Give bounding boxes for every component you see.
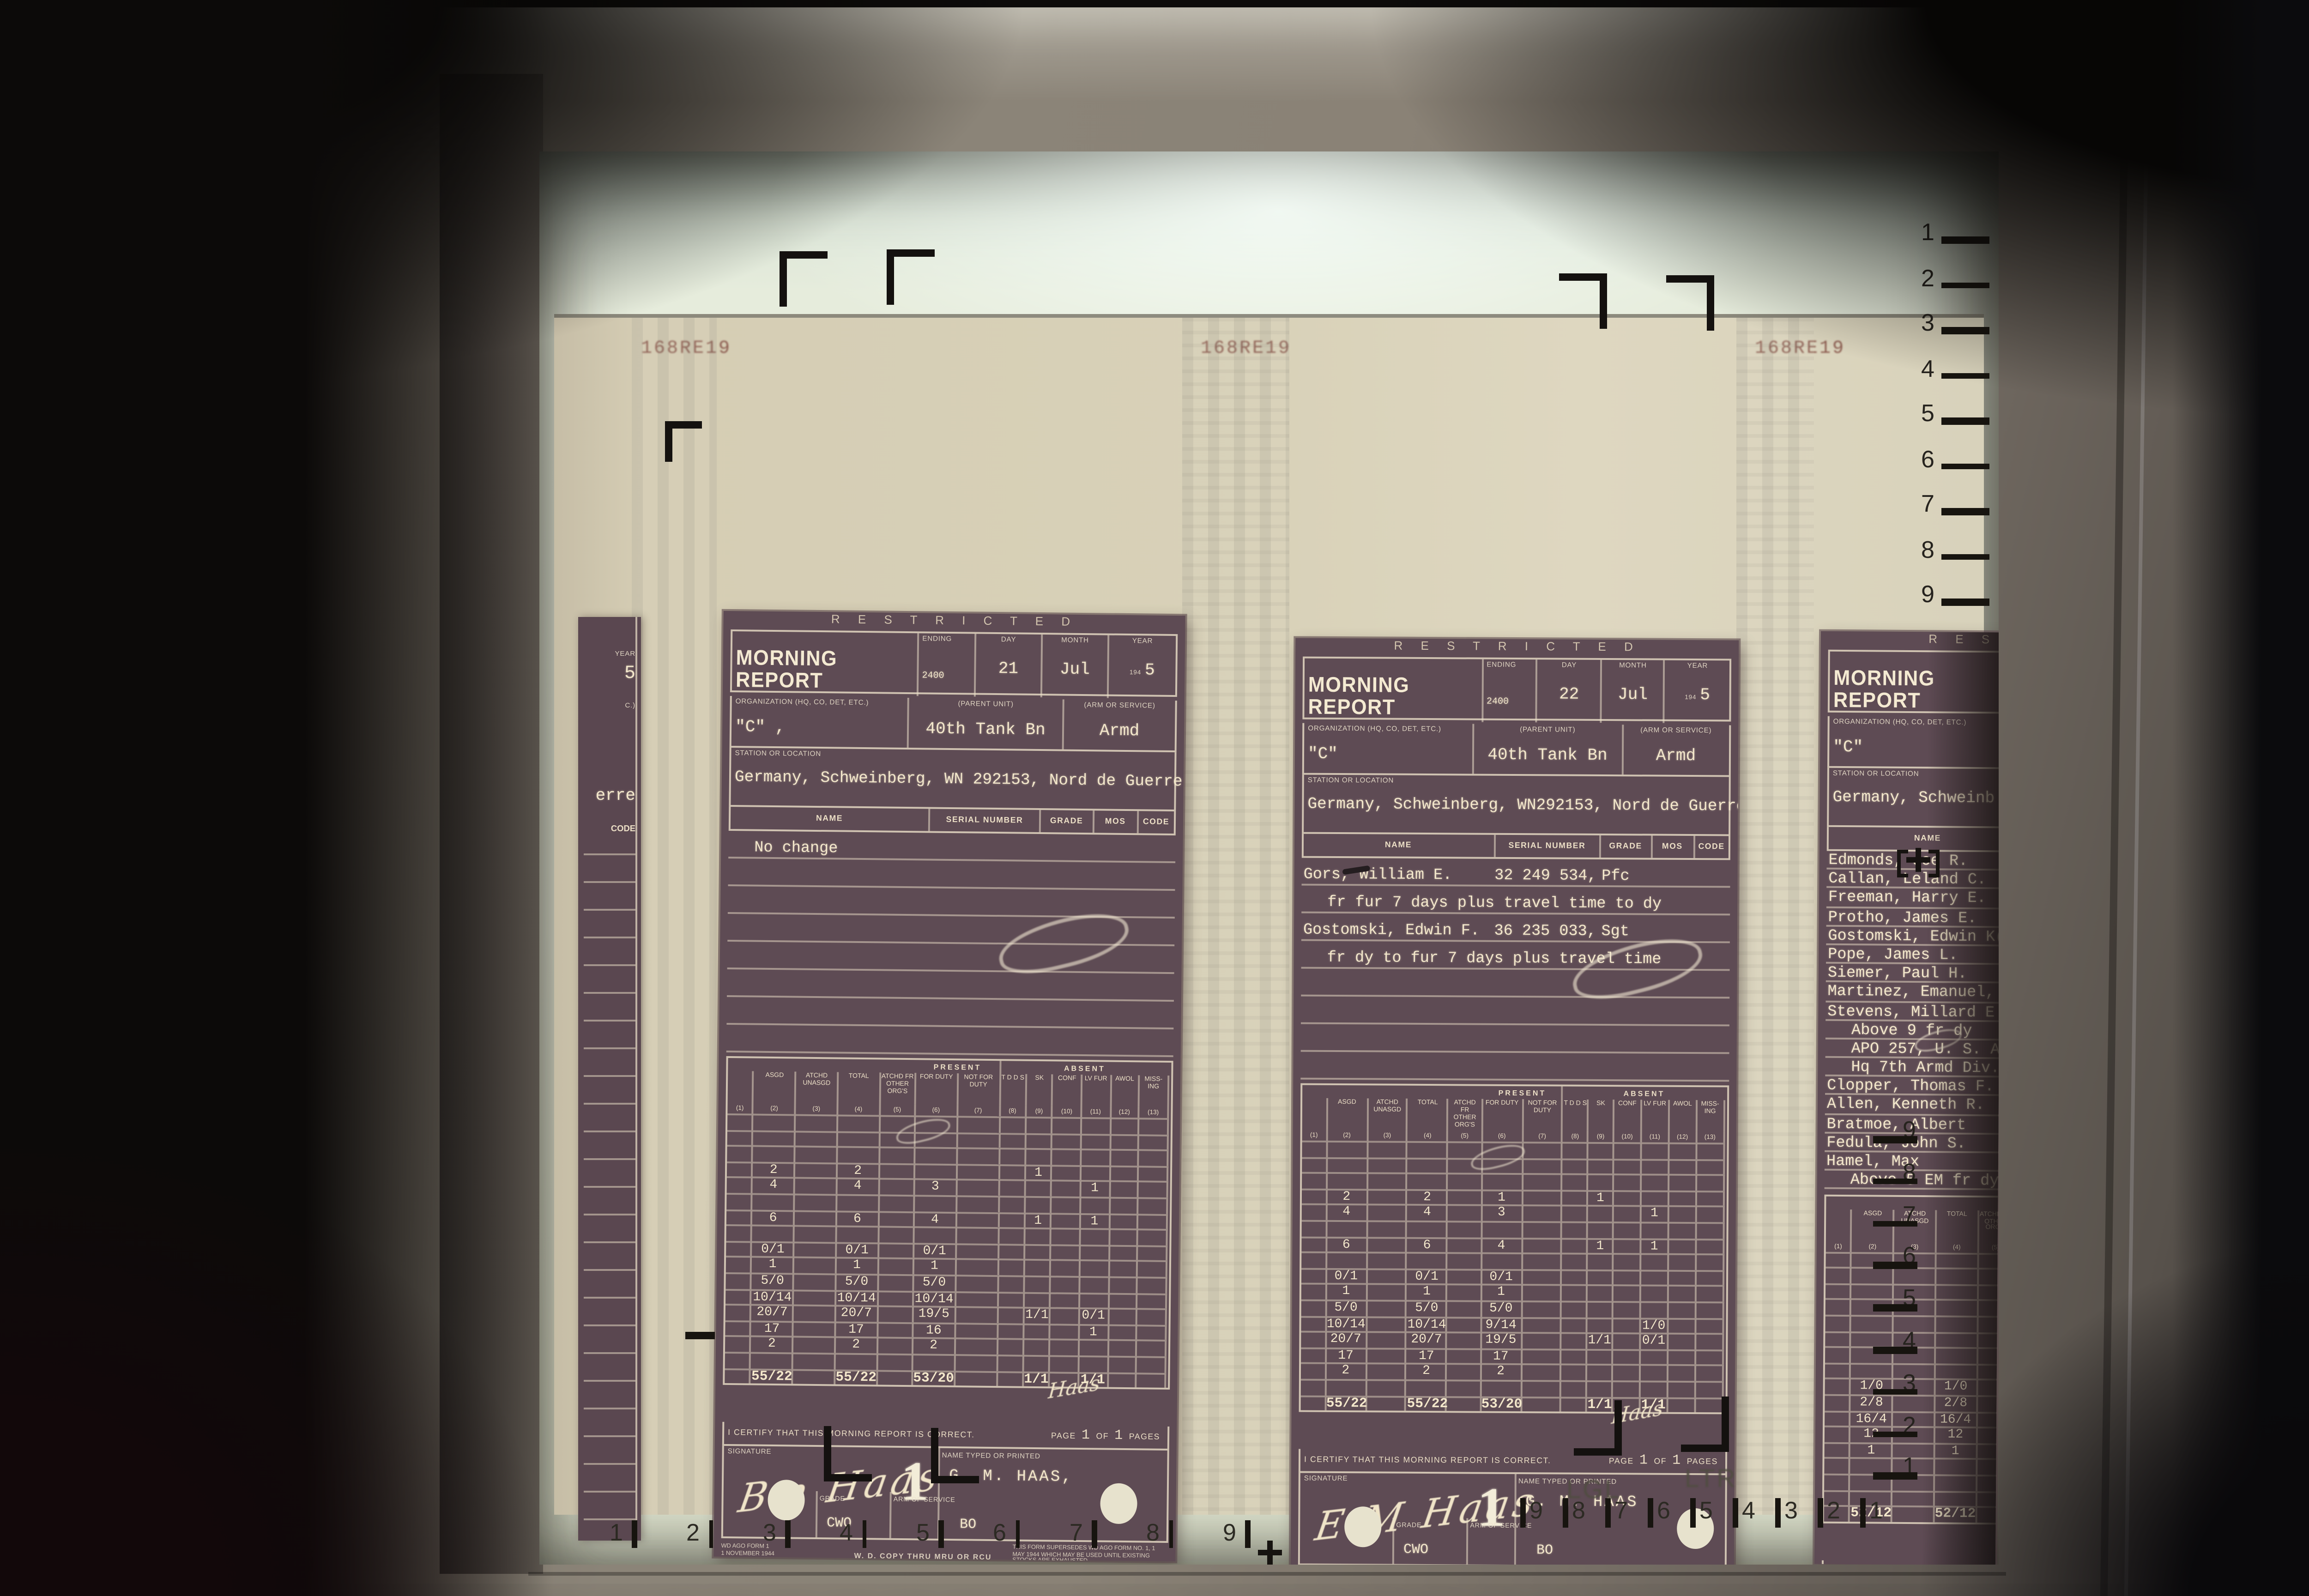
strength-cell [1447,1363,1481,1379]
strength-cell [1366,1395,1407,1411]
strength-cell [1137,1372,1166,1388]
strength-col-label: TOTAL [1408,1099,1449,1130]
strength-cell [1825,1299,1852,1315]
strength-cell [1447,1379,1481,1396]
strength-cell: 1 [1080,1324,1109,1340]
entry-name: Gors, William E. [1302,865,1495,885]
strength-cell [997,1354,1024,1371]
day-cell: DAY22 [1538,659,1602,723]
strength-col-number: (2) [1852,1240,1894,1252]
ruler-tick [862,1520,866,1548]
strength-cell [1588,1348,1613,1365]
ruler-tick [1941,463,1989,469]
strength-cell [956,1259,999,1275]
strength-cell: 0/1 [1080,1307,1109,1324]
ruler-tick [1733,1498,1737,1528]
strength-cell [1825,1251,1852,1267]
strength-cell [838,1114,881,1130]
strength-cell [1563,1158,1589,1174]
film-sheet: 168RE19 168RE19 168RE19 YEAR 5 C.) erre … [554,318,1984,1515]
strength-cell [1302,1220,1327,1236]
day-label: DAY [1542,661,1596,670]
strength-col-label: SK [1589,1100,1615,1131]
strength-cell [1110,1228,1139,1245]
station-cell: STATION OR LOCATIONGermany, Schweinberg,… [1304,775,1729,834]
strength-cell [1408,1157,1449,1173]
strength-cell [1825,1283,1852,1299]
strength-cell [1301,1283,1327,1300]
strength-col-number: (13) [1140,1106,1169,1118]
strength-cell [1138,1276,1167,1293]
entry-name [726,1051,928,1053]
strength-cell: 2 [913,1337,956,1354]
arm-of-service-value: BO [960,1518,976,1533]
certify-text: I CERTIFY THAT THIS MORNING REPORT IS CO… [1300,1455,1551,1466]
strength-cell [1082,1165,1111,1181]
strength-cell [727,1145,754,1161]
strength-cell [997,1370,1024,1386]
column-header: CODE [1138,811,1174,834]
strength-cell [1327,1220,1368,1236]
strength-cell [1588,1380,1613,1396]
strength-col-label: T D D S [1563,1100,1589,1131]
entry-grade: Pfc [1602,867,1653,886]
strength-cell [1562,1285,1588,1301]
entry-serial [1494,1023,1601,1024]
strength-cell [1448,1236,1482,1252]
strength-cell [1669,1158,1697,1174]
day-value: 22 [1542,684,1596,703]
parent-cell: (PARENT UNIT)40th Tank Bn [1474,724,1623,775]
strength-cell [1825,1426,1851,1442]
strength-cell [878,1353,913,1369]
ruler-tick [1860,1498,1865,1528]
strength-cell [1851,1362,1893,1378]
grade-label: GRADE [820,1495,845,1504]
pages-number: 1 [1114,1429,1124,1444]
strength-cell [1563,1253,1588,1269]
ruler-digit: 1 [1921,218,1934,246]
strength-cell: 2/8 [1851,1394,1893,1410]
ruler-tick [1941,508,1989,514]
entry-row: Gors, William E.32 249 534,Pfc [1302,858,1730,888]
strength-cell [1851,1457,1893,1474]
strength-cell [1448,1205,1482,1221]
org-cell: ORGANIZATION (HQ, CO, DET, ETC.)"C" [1304,723,1475,774]
strength-col-label [728,1071,755,1103]
strength-cell [838,1146,880,1162]
strength-cell: 17 [1481,1348,1522,1364]
strength-cell [1052,1180,1082,1197]
strength-cell [1562,1300,1588,1317]
strength-cell: 6 [1408,1236,1448,1252]
strength-cell [1109,1276,1138,1292]
strength-cell [725,1320,752,1336]
strength-cell [1327,1173,1368,1189]
entry-remark-row: fr fur 7 days plus travel time to dy [1301,886,1730,916]
strength-cell [956,1306,998,1323]
strength-cell: 6 [1327,1236,1368,1252]
ending-label: ENDING [922,635,971,644]
arm-value: Armd [1626,746,1725,765]
strength-cell [726,1209,753,1225]
entry-grade [1601,1052,1652,1052]
strength-cell [1642,1158,1669,1174]
ruler-tick [1873,1473,1917,1480]
org-label: ORGANIZATION (HQ, CO, DET, ETC.) [736,698,904,708]
page-stamp-numeral: 1 [901,1451,929,1515]
strength-cell [999,1148,1026,1164]
strength-cell [1697,1190,1724,1206]
strength-cell [725,1352,752,1368]
strength-cell [1302,1188,1327,1204]
strength-cell [1082,1133,1111,1149]
strength-cell [727,1129,754,1145]
pages-label: PAGES [1129,1432,1160,1441]
strength-col-number: (7) [958,1105,1000,1116]
strength-cell: 1 [1408,1284,1448,1300]
ruler-tick [1775,1498,1780,1528]
column-header: GRADE [1601,835,1652,858]
strength-cell [1139,1165,1168,1181]
footer-form-line2: 1 NOVEMBER 1944 [721,1549,833,1558]
strength-cell [1523,1157,1564,1173]
strength-cell [726,1225,753,1241]
strength-cell [956,1275,998,1291]
strength-cell [1523,1173,1563,1190]
strength-cell [1408,1173,1449,1189]
strength-row [1302,1220,1727,1238]
corner-mark-icon [665,421,702,462]
strength-cell [1448,1221,1482,1237]
doc-header-row1: MORNING REPORTENDING2400DAY21MONTHJulYEA… [730,629,1178,697]
ruler-digit: 4 [1742,1496,1755,1524]
corner-mark-icon [1559,273,1607,329]
strength-cell [1301,1378,1326,1395]
strength-cell [1301,1268,1327,1284]
entry-row [726,1025,1174,1057]
strength-cell [1053,1149,1082,1165]
strength-cell: 55/22 [835,1368,878,1384]
strength-cell [957,1195,999,1211]
strength-cell [1523,1142,1564,1158]
strength-cell: 4 [915,1210,957,1227]
station-value: Germany, Schweinberg, WN 292153, Nord de… [735,767,1171,790]
bezel-seam [528,1572,2006,1576]
strength-cell: 10/14 [752,1288,795,1305]
strength-cell: 2 [752,1336,794,1352]
strength-cell: 1 [837,1257,879,1274]
strength-cell [877,1369,913,1385]
entry-serial: 32 249 534, [1494,866,1602,885]
strength-cell [1641,1269,1669,1285]
crosshair-bracket-icon [1906,848,1930,872]
strength-cell [955,1338,998,1354]
year-value: 1945 [1669,685,1726,704]
year-label: YEAR [1669,662,1726,671]
strength-col-number: (13) [1697,1131,1725,1143]
strength-cell [1642,1174,1669,1190]
doc-header-row3: STATION OR LOCATIONGermany, Schweinberg,… [729,748,1176,811]
strength-cell [1588,1253,1614,1269]
column-header: NAME [731,807,930,831]
footer-form-number: WD AGO FORM 11 NOVEMBER 1944 [721,1542,834,1561]
strength-cell [1482,1173,1523,1189]
column-header: CODE [1694,836,1729,858]
strength-cell [1137,1356,1166,1372]
strength-cell: 6 [837,1210,880,1226]
strength-cell [1137,1308,1167,1324]
strength-cell [1852,1315,1894,1331]
strength-cell: 5/0 [836,1273,879,1289]
strength-cell [726,1240,753,1257]
ending-cell: ENDING2400 [918,633,976,696]
strength-cell [1668,1380,1696,1396]
strength-cell [1111,1133,1140,1149]
strength-row: 0/10/10/1 [1301,1268,1726,1286]
strength-cell: 17 [752,1320,794,1336]
ruler-digit: 6 [1657,1496,1670,1524]
ruler-digit: 7 [1921,490,1934,517]
strength-cell [753,1225,795,1241]
strength-cell [725,1367,751,1384]
strength-cell: 4 [1408,1204,1449,1221]
film-striations [1736,318,1814,1515]
station-value: Germany, Schweinberg, WN292153, Nord de … [1307,794,1725,815]
ruler-tick [1520,1498,1525,1528]
strength-cell [794,1257,837,1273]
month-value: Jul [1046,659,1103,678]
strength-cell [1027,1117,1053,1133]
day-cell: DAY21 [976,634,1043,698]
strength-col-number: (8) [1563,1131,1589,1142]
strength-cell [1081,1228,1110,1245]
strength-cell [1051,1291,1080,1307]
strength-cell [957,1148,1000,1164]
strength-cell [1139,1149,1168,1166]
ending-value: 2400 [922,669,970,681]
strength-cell [1614,1301,1641,1317]
strength-cell [1696,1285,1724,1301]
strength-cell [1368,1157,1408,1173]
strength-cell [878,1321,913,1337]
strength-cell: 10/14 [914,1290,956,1306]
entry-code [1138,999,1173,1000]
ruler-tick [1941,372,1989,379]
strength-col-number: (1) [727,1102,754,1114]
strength-cell [1327,1156,1368,1173]
strength-cell [1024,1323,1051,1339]
strength-cell [1641,1301,1668,1317]
entry-code [1139,916,1174,917]
strength-cell [1522,1269,1563,1285]
column-header: MOS [1652,836,1694,858]
strength-cell [1138,1229,1167,1245]
strength-cell [1523,1189,1563,1205]
corner-mark-icon [1666,275,1714,331]
year-label: YEAR [1113,637,1172,646]
strength-cell [1367,1252,1408,1268]
signature-script: E M Haas [1312,1478,1540,1550]
strength-cell [1110,1197,1139,1213]
month-label: MONTH [1046,636,1104,645]
strength-cell [1108,1355,1137,1372]
strength-col-number: (10) [1053,1106,1082,1117]
strength-cell: 2 [1481,1364,1522,1380]
strength-cell [726,1193,753,1209]
strength-cell [1081,1244,1110,1260]
strength-cell: 2 [1327,1188,1368,1204]
entry-row [1300,1052,1729,1082]
strength-table: PRESENTABSENTASGDATCHD UNASGDTOTALATCHD … [723,1056,1173,1390]
strength-cell [1523,1205,1563,1221]
of-label: OF [1654,1456,1667,1465]
signature-label: SIGNATURE [728,1448,772,1457]
ruler-digit: 3 [763,1518,776,1546]
strength-col-label: AWOL [1111,1075,1140,1107]
strength-cell [1448,1284,1482,1300]
strength-cell [1052,1196,1082,1212]
strength-cell: 17 [836,1321,878,1337]
strength-cell [1052,1164,1082,1180]
strength-cell [1588,1221,1614,1238]
strength-cell [878,1290,914,1306]
station-cell: STATION OR LOCATIONGermany, Schweinberg,… [731,748,1174,810]
strength-cell [1825,1346,1852,1362]
strength-cell: 0/1 [1408,1268,1448,1284]
strength-cell [1139,1197,1168,1213]
strength-cell [998,1275,1025,1291]
strength-cell [1448,1300,1482,1316]
strength-cell [999,1227,1026,1244]
strength-cell [915,1147,958,1163]
strength-cell [796,1130,838,1146]
strength-cell [838,1130,881,1147]
strength-cell [1824,1457,1851,1474]
strength-cell [1613,1380,1641,1396]
sliver-edge-line [635,617,637,1541]
strength-cell: 53/20 [1481,1396,1522,1412]
strength-cell [1138,1245,1167,1261]
strength-cell [1051,1307,1080,1324]
strength-cell: 5/0 [1327,1300,1367,1316]
of-label: OF [1096,1431,1109,1440]
strength-row [1301,1378,1726,1396]
strength-cell [1522,1316,1563,1332]
strength-cell [1641,1365,1668,1381]
strength-cell [1613,1364,1641,1380]
page-number: 1 [1639,1454,1649,1469]
ruler-digit: 4 [840,1518,853,1546]
strength-cell [794,1305,836,1321]
strength-cell [880,1147,915,1163]
strength-cell [1302,1172,1327,1188]
strength-cell: 0/1 [1482,1269,1523,1285]
ruler-tick [1648,1498,1652,1528]
strength-cell [1852,1330,1894,1347]
film-top-edge [554,314,1984,318]
strength-row [1302,1172,1727,1190]
strength-cell: 2 [1407,1363,1448,1379]
page-indicator: PAGE1OF1PAGES [1051,1429,1167,1445]
entry-remark-row: No change [728,831,1176,863]
strength-row: 66411 [1301,1236,1726,1254]
punch-hole [1100,1483,1137,1524]
punch-hole [768,1479,805,1520]
strength-cell [1408,1221,1448,1237]
strength-col-label: T D D S [1000,1074,1027,1106]
grade-label: GRADE [1396,1521,1421,1529]
strength-cell [1697,1158,1725,1174]
strength-cell: 55/22 [1407,1395,1448,1411]
strength-col-number: (6) [1482,1130,1523,1142]
strength-cell [837,1194,880,1210]
strength-cell: 16 [913,1322,956,1338]
ruler-tick [1873,1136,1917,1143]
strength-cell: 19/5 [914,1306,956,1322]
ruler-tick [1941,553,1989,560]
strength-cell [1697,1143,1725,1159]
strength-cell [1613,1317,1641,1333]
strength-cell: 0/1 [837,1241,879,1257]
strength-cell [1563,1237,1588,1253]
strength-cell [1825,1362,1852,1378]
strength-cell: 5/0 [1408,1300,1448,1316]
entry-name [1301,1022,1494,1023]
strength-cell [1669,1238,1697,1254]
corner-mark-icon [824,1426,872,1481]
strength-cell [1026,1149,1053,1165]
strength-cell: 19/5 [1481,1332,1522,1348]
strength-cell [999,1196,1026,1212]
strength-cell [793,1368,836,1384]
year-cell: YEAR1945 [1109,635,1176,699]
strength-cell [1024,1354,1051,1371]
strength-col-number: (11) [1642,1131,1669,1142]
strength-col-number: (11) [1082,1106,1111,1118]
strength-cell [1563,1269,1588,1285]
strength-cell: 1 [1026,1164,1053,1180]
strength-cell: 0/1 [914,1242,957,1258]
strength-cell [1109,1260,1138,1276]
strength-cell [793,1352,836,1368]
strength-cell [878,1306,914,1322]
strength-cell [1563,1221,1588,1237]
strength-cell [1588,1317,1613,1333]
strength-cell: 16/4 [1851,1410,1893,1426]
ruler-tick [1245,1520,1250,1548]
strength-cell [1081,1197,1110,1213]
entry-name [1301,995,1494,996]
strength-row: 111 [1301,1283,1726,1301]
ruler-digit: 9 [1529,1496,1543,1524]
strength-cell [1563,1205,1588,1221]
strength-cell [915,1163,958,1179]
morning-report-middle: R E S T R I C T E DMORNING REPORTENDING2… [1291,638,1739,1565]
strength-cell [1367,1331,1408,1348]
strength-col-number: (1) [1826,1240,1853,1251]
ruler-tick [708,1520,713,1548]
entry-code [1139,944,1174,944]
strength-col-number: (2) [754,1103,796,1114]
corner-mark-icon [887,249,935,305]
strength-cell: 0/1 [1641,1333,1668,1349]
strength-cell [1448,1268,1482,1284]
strength-cell [1000,1132,1027,1149]
strength-cell [956,1243,999,1259]
strength-row: 5/05/05/0 [1301,1299,1726,1317]
strength-cell [1523,1221,1563,1237]
